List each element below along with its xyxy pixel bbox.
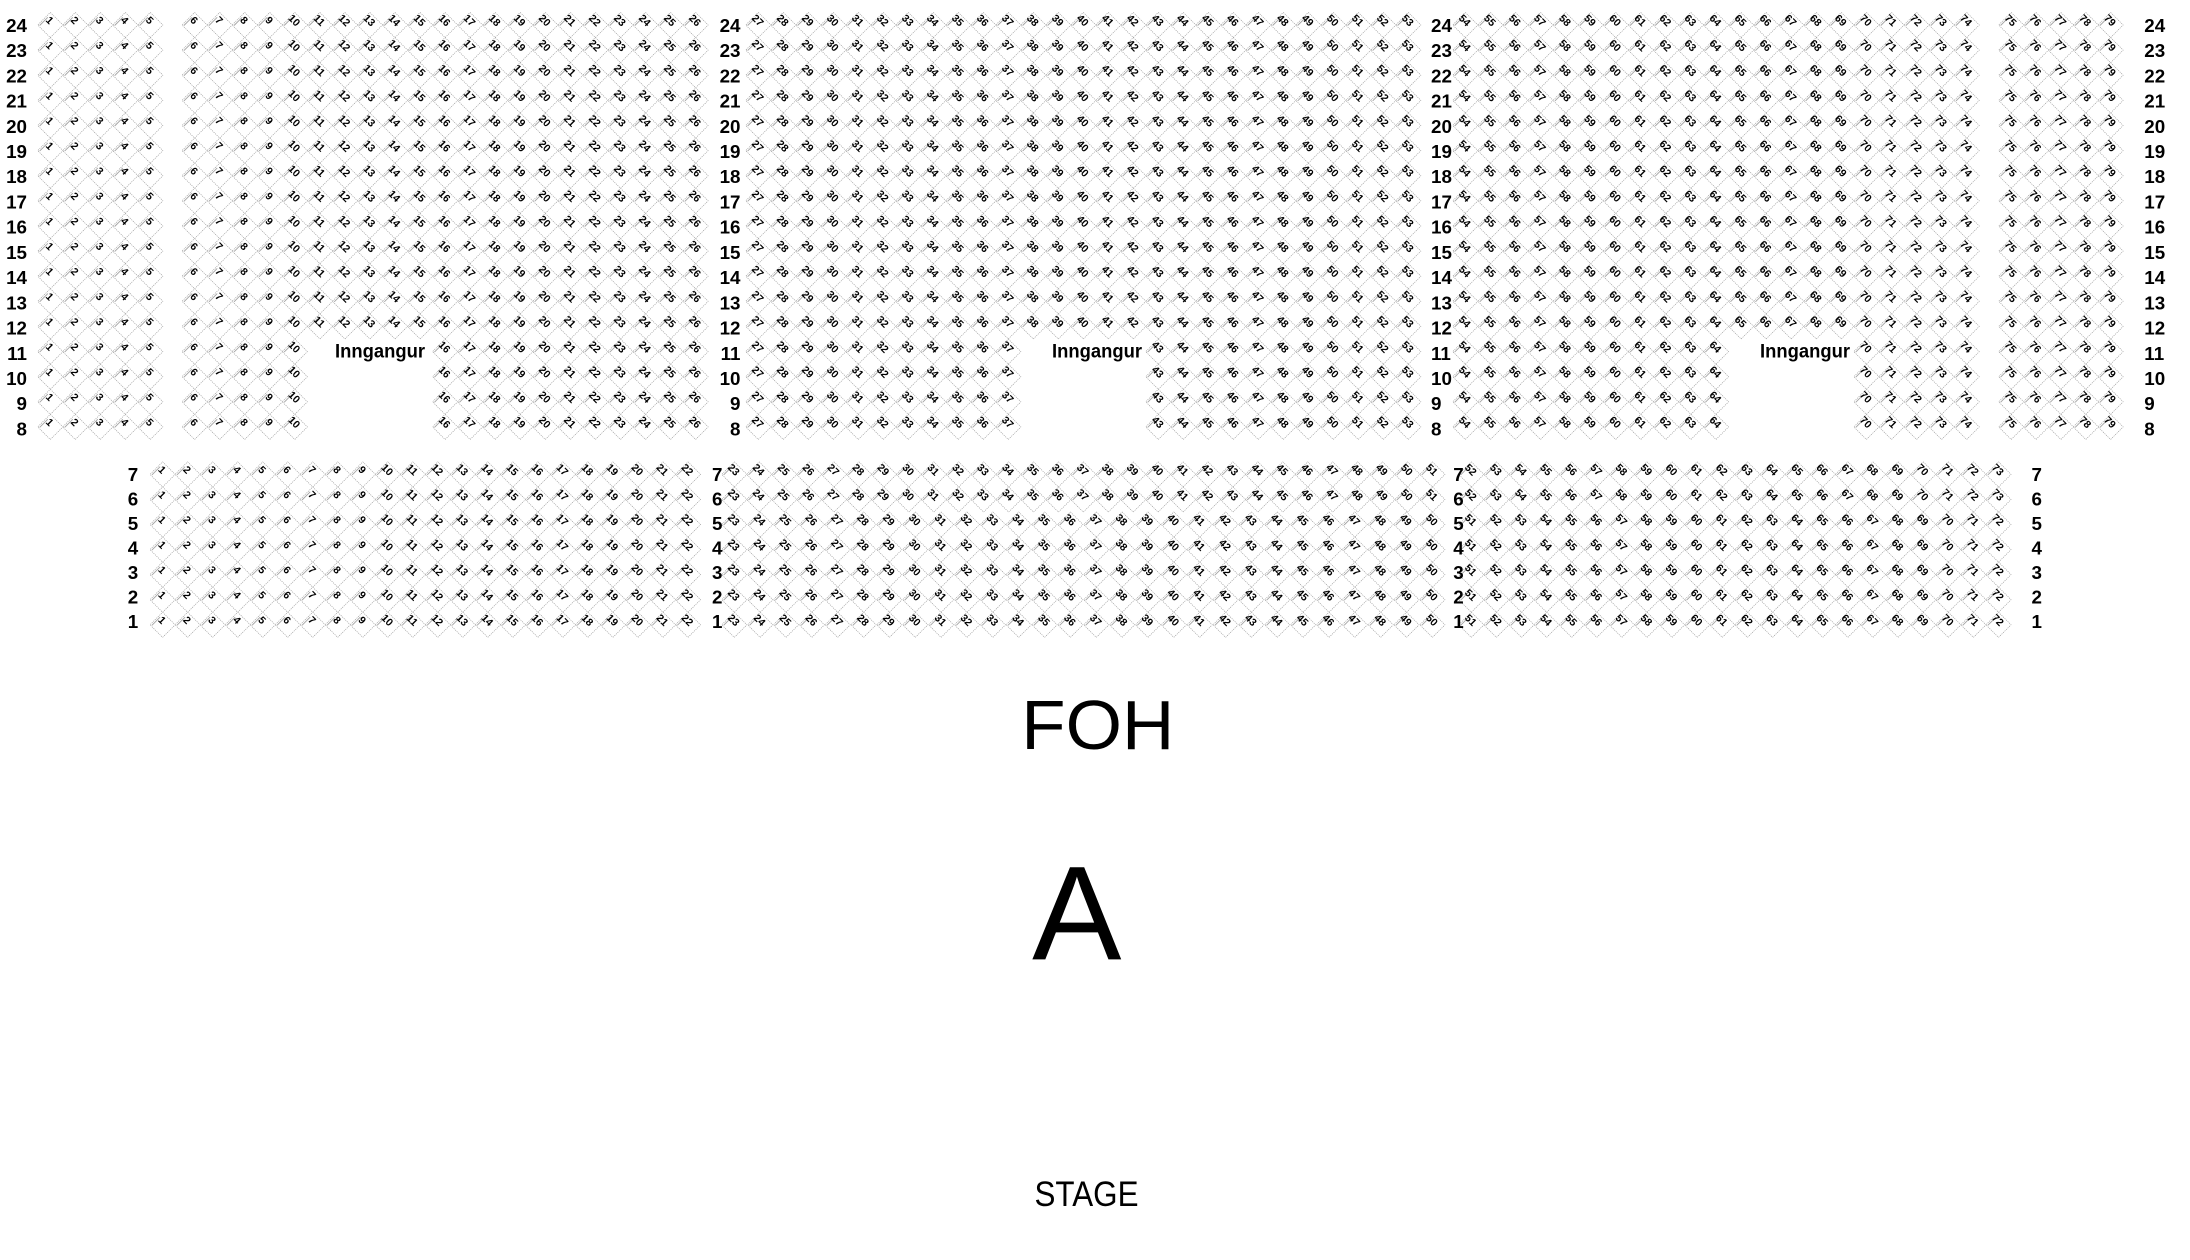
svg-text:19: 19 xyxy=(6,141,27,162)
svg-text:11: 11 xyxy=(721,343,741,364)
svg-text:2: 2 xyxy=(128,587,138,608)
svg-text:9: 9 xyxy=(2144,393,2154,414)
svg-text:20: 20 xyxy=(1431,116,1452,137)
svg-text:22: 22 xyxy=(1431,65,1452,86)
svg-text:16: 16 xyxy=(1431,217,1452,238)
svg-text:7: 7 xyxy=(712,464,722,485)
svg-text:1: 1 xyxy=(2031,611,2041,632)
svg-text:22: 22 xyxy=(720,65,741,86)
svg-text:23: 23 xyxy=(1431,40,1452,61)
svg-text:21: 21 xyxy=(1431,91,1452,112)
svg-text:22: 22 xyxy=(2144,65,2165,86)
svg-text:Inngangur: Inngangur xyxy=(1052,342,1143,363)
svg-text:13: 13 xyxy=(720,292,741,313)
svg-text:17: 17 xyxy=(720,191,741,212)
svg-text:16: 16 xyxy=(2144,217,2165,238)
svg-text:24: 24 xyxy=(720,15,741,36)
svg-text:9: 9 xyxy=(730,393,740,414)
svg-text:13: 13 xyxy=(2144,292,2165,313)
svg-text:14: 14 xyxy=(720,267,741,288)
svg-text:2: 2 xyxy=(712,587,722,608)
svg-text:14: 14 xyxy=(6,267,27,288)
svg-text:19: 19 xyxy=(1431,141,1452,162)
svg-text:9: 9 xyxy=(17,393,27,414)
svg-text:8: 8 xyxy=(2144,418,2154,439)
svg-text:6: 6 xyxy=(2031,489,2041,510)
svg-text:14: 14 xyxy=(1431,267,1452,288)
svg-text:5: 5 xyxy=(2031,513,2041,534)
svg-text:22: 22 xyxy=(6,65,27,86)
svg-text:8: 8 xyxy=(1431,418,1441,439)
svg-text:10: 10 xyxy=(6,368,27,389)
svg-text:11: 11 xyxy=(7,343,27,364)
svg-text:STAGE: STAGE xyxy=(1035,1175,1139,1214)
svg-text:8: 8 xyxy=(730,418,740,439)
svg-text:24: 24 xyxy=(6,15,27,36)
svg-text:5: 5 xyxy=(128,513,138,534)
svg-text:24: 24 xyxy=(2144,15,2165,36)
svg-text:7: 7 xyxy=(128,464,138,485)
svg-text:19: 19 xyxy=(2144,141,2165,162)
svg-text:1: 1 xyxy=(712,611,722,632)
svg-text:1: 1 xyxy=(128,611,138,632)
svg-text:13: 13 xyxy=(1431,292,1452,313)
svg-text:23: 23 xyxy=(2144,40,2165,61)
svg-text:7: 7 xyxy=(1453,464,1463,485)
svg-text:8: 8 xyxy=(17,418,27,439)
svg-text:12: 12 xyxy=(720,318,741,339)
svg-text:1: 1 xyxy=(1453,611,1463,632)
svg-text:10: 10 xyxy=(720,368,741,389)
svg-text:2: 2 xyxy=(2031,587,2041,608)
svg-text:Inngangur: Inngangur xyxy=(335,342,426,363)
svg-text:6: 6 xyxy=(712,489,722,510)
svg-text:10: 10 xyxy=(1431,368,1452,389)
svg-text:15: 15 xyxy=(720,242,741,263)
svg-text:A: A xyxy=(1032,839,1122,988)
svg-text:3: 3 xyxy=(1453,562,1463,583)
svg-text:23: 23 xyxy=(6,40,27,61)
svg-text:24: 24 xyxy=(1431,15,1452,36)
svg-text:4: 4 xyxy=(712,538,723,559)
svg-text:21: 21 xyxy=(2144,91,2165,112)
svg-text:12: 12 xyxy=(1431,318,1452,339)
svg-text:17: 17 xyxy=(1431,191,1452,212)
svg-text:3: 3 xyxy=(2031,562,2041,583)
svg-text:15: 15 xyxy=(2144,242,2165,263)
svg-text:4: 4 xyxy=(128,538,139,559)
svg-text:3: 3 xyxy=(128,562,138,583)
svg-text:15: 15 xyxy=(1431,242,1452,263)
svg-text:17: 17 xyxy=(2144,191,2165,212)
svg-text:6: 6 xyxy=(1453,489,1463,510)
svg-text:4: 4 xyxy=(2031,538,2042,559)
svg-text:5: 5 xyxy=(1453,513,1463,534)
svg-text:16: 16 xyxy=(6,217,27,238)
svg-text:5: 5 xyxy=(712,513,722,534)
svg-text:16: 16 xyxy=(720,217,741,238)
svg-text:21: 21 xyxy=(720,91,741,112)
svg-text:17: 17 xyxy=(6,191,27,212)
svg-text:12: 12 xyxy=(6,318,27,339)
svg-text:23: 23 xyxy=(720,40,741,61)
svg-text:FOH: FOH xyxy=(1021,686,1174,764)
svg-text:21: 21 xyxy=(6,91,27,112)
svg-text:20: 20 xyxy=(2144,116,2165,137)
svg-text:19: 19 xyxy=(720,141,741,162)
svg-text:14: 14 xyxy=(2144,267,2165,288)
svg-text:9: 9 xyxy=(1431,393,1441,414)
svg-text:18: 18 xyxy=(2144,166,2165,187)
svg-text:10: 10 xyxy=(2144,368,2165,389)
svg-text:7: 7 xyxy=(2031,464,2041,485)
svg-text:3: 3 xyxy=(712,562,722,583)
svg-text:4: 4 xyxy=(1453,538,1464,559)
svg-text:6: 6 xyxy=(128,489,138,510)
svg-text:Inngangur: Inngangur xyxy=(1760,342,1851,363)
svg-text:15: 15 xyxy=(6,242,27,263)
svg-text:13: 13 xyxy=(6,292,27,313)
svg-text:18: 18 xyxy=(720,166,741,187)
svg-text:20: 20 xyxy=(720,116,741,137)
svg-text:11: 11 xyxy=(2144,343,2164,364)
svg-text:11: 11 xyxy=(1431,343,1451,364)
svg-text:18: 18 xyxy=(6,166,27,187)
svg-text:12: 12 xyxy=(2144,318,2165,339)
svg-text:2: 2 xyxy=(1453,587,1463,608)
svg-text:20: 20 xyxy=(6,116,27,137)
svg-text:18: 18 xyxy=(1431,166,1452,187)
